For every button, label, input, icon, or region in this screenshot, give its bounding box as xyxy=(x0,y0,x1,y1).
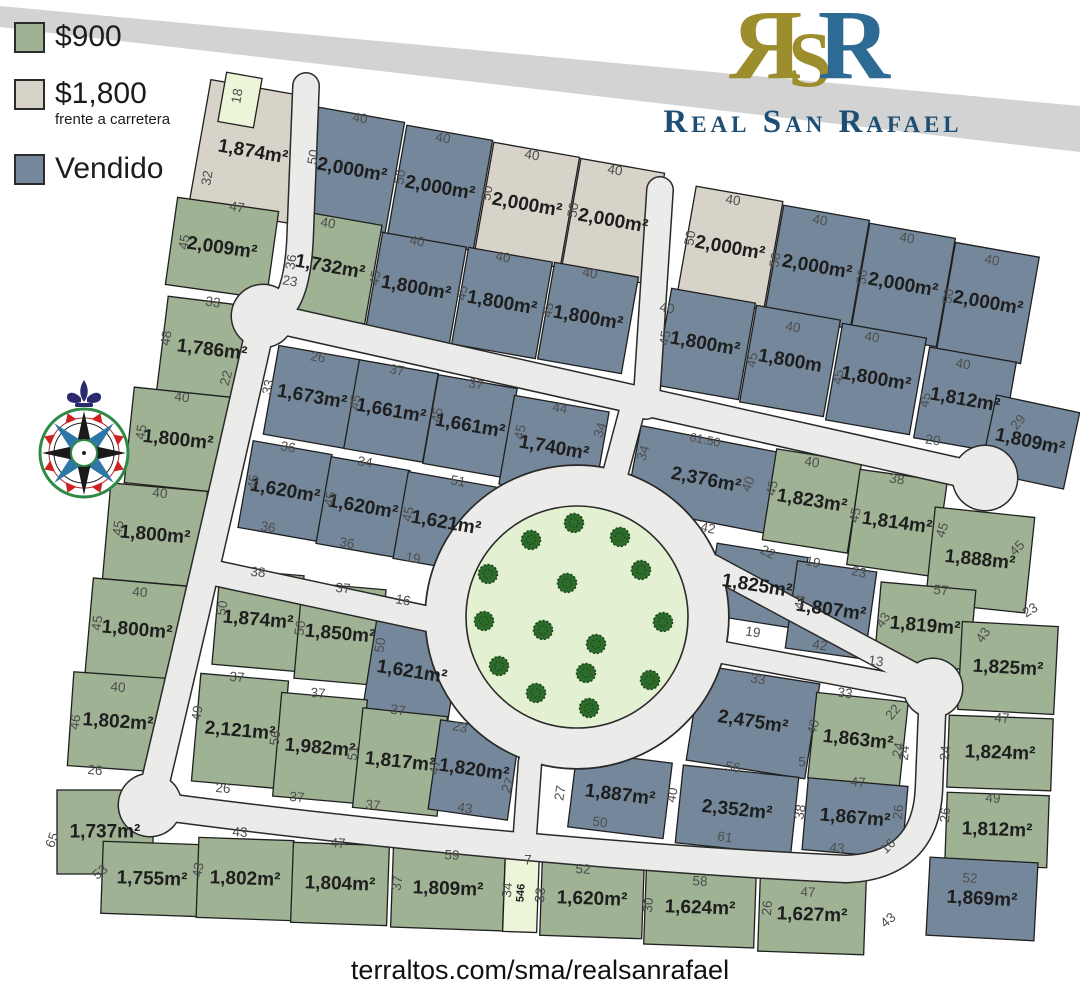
lot-frontage-label: 23 xyxy=(850,563,868,581)
lot-frontage-label: 43 xyxy=(829,840,845,856)
legend-sublabel: frente a carretera xyxy=(55,111,170,128)
tree-icon xyxy=(641,671,660,690)
lot-frontage-label: 40 xyxy=(983,251,1000,268)
lot-frontage-label: 40 xyxy=(174,389,191,406)
lot-frontage-label: 36 xyxy=(279,438,296,455)
lot-frontage-label: 40 xyxy=(319,214,336,231)
lot-frontage-label: 40 xyxy=(132,584,149,600)
lot-frontage-label: 43 xyxy=(877,909,898,930)
lot-frontage-label: 34 xyxy=(499,881,515,898)
central-park xyxy=(466,506,688,728)
lot-frontage-label: 7 xyxy=(524,853,532,868)
lot-frontage-label: 40 xyxy=(152,485,169,501)
lot-frontage-label: 40 xyxy=(811,211,828,228)
legend-item-front: $1,800 frente a carretera xyxy=(14,79,170,128)
lot-frontage-label: 43 xyxy=(456,799,473,816)
lot-frontage-label: 46 xyxy=(67,714,84,731)
lot-size-label: 1,620m² xyxy=(556,887,627,910)
lot-frontage-label: 16 xyxy=(394,591,411,608)
lot-frontage-label: 40 xyxy=(863,328,880,345)
lot-frontage-label: 47 xyxy=(800,884,816,900)
available-swatch-icon xyxy=(14,22,45,53)
tree-icon xyxy=(490,657,509,676)
lot-frontage-label: 40 xyxy=(581,264,598,281)
lot-frontage-label: 38 xyxy=(889,471,906,488)
lot-frontage-label: 52 xyxy=(962,870,978,886)
tree-icon xyxy=(558,574,577,593)
lot-frontage-label: 51 xyxy=(449,472,466,489)
lot-frontage-label: 33 xyxy=(532,887,548,903)
tree-icon xyxy=(580,699,599,718)
lot-frontage-label: 50 xyxy=(853,268,870,285)
lot-frontage-label: 42 xyxy=(812,637,829,654)
lot-frontage-label: 26 xyxy=(759,900,775,916)
lot-frontage-label: 45 xyxy=(244,473,262,491)
tree-icon xyxy=(654,613,673,632)
lot-frontage-label: 56 xyxy=(267,730,284,747)
lot-frontage-label: 47 xyxy=(994,710,1010,726)
tree-icon xyxy=(479,565,498,584)
lot-frontage-label: 26 xyxy=(890,804,906,820)
tree-icon xyxy=(522,531,541,550)
lot-frontage-label: 58 xyxy=(692,873,708,889)
lot-frontage-label: 19 xyxy=(804,553,822,571)
lot-frontage-label: 45 xyxy=(916,391,933,408)
lot-frontage-label: 42 xyxy=(699,519,717,537)
lot-frontage-label: 40 xyxy=(954,355,971,372)
lot-frontage-label: 24 xyxy=(889,741,906,759)
lot-frontage-label: 40 xyxy=(606,161,623,178)
lot-frontage-label: 40 xyxy=(658,299,675,316)
lot-frontage-label: 26 xyxy=(309,348,326,365)
lot-frontage-label: 18 xyxy=(228,87,245,104)
lot-frontage-label: 38 xyxy=(250,564,266,580)
lot-frontage-label: 45 xyxy=(511,423,529,441)
monogram-letter: R xyxy=(736,0,802,90)
legend-item-sold: Vendido xyxy=(14,154,170,185)
lot-frontage-label: 50 xyxy=(766,251,783,268)
brand-logo: RSR Real San Rafael xyxy=(648,0,978,141)
monogram-letter: R xyxy=(818,0,890,90)
lot-frontage-label: 36 xyxy=(259,518,276,535)
lot-frontage-label: 40 xyxy=(110,679,126,695)
legend: $900 $1,800 frente a carretera Vendido xyxy=(14,22,170,211)
front-road-swatch-icon xyxy=(14,79,45,110)
brand-title: Real San Rafael xyxy=(648,104,978,141)
lot-frontage-label: 45 xyxy=(539,301,556,318)
lot-frontage-label: 50 xyxy=(681,229,698,246)
legend-item-available: $900 xyxy=(14,22,170,53)
lot-frontage-label: 37 xyxy=(388,361,405,378)
tree-icon xyxy=(475,612,494,631)
lot-size-label: 1,812m² xyxy=(961,818,1032,841)
lot-frontage-label: 45 xyxy=(743,351,760,368)
lot-frontage-label: 51 xyxy=(345,745,362,762)
lot-frontage-label: 47 xyxy=(330,835,346,851)
tree-icon xyxy=(587,635,606,654)
lot-frontage-label: 49 xyxy=(189,705,206,722)
lot-frontage-label: 27 xyxy=(551,784,568,801)
lot-size-label: 1,802m² xyxy=(209,867,280,890)
lot-size-label: 1,809m² xyxy=(412,877,483,900)
lot-frontage-label: 40 xyxy=(523,146,540,163)
lot-size-label: 1,825m² xyxy=(972,656,1044,681)
compass-star xyxy=(42,411,126,495)
tree-icon xyxy=(611,528,630,547)
lot-frontage-label: 48 xyxy=(158,330,175,347)
lot-frontage-label: 40 xyxy=(724,191,741,208)
lot-frontage-label: 59 xyxy=(444,847,460,863)
lot-frontage-label: 56 xyxy=(725,759,742,776)
lot-frontage-label: 50 xyxy=(372,637,389,654)
lot-frontage-label: 37 xyxy=(467,375,484,392)
lot-frontage-label: 32 xyxy=(198,169,215,186)
tree-icon xyxy=(534,621,553,640)
lot-frontage-label: 37 xyxy=(365,797,381,813)
lot-frontage-label: 33 xyxy=(205,294,222,311)
lot-frontage-label: 44 xyxy=(551,399,569,416)
website-url: terraltos.com/sma/realsanrafael xyxy=(0,955,1080,986)
lot-size-label: 1,824m² xyxy=(964,741,1035,764)
sold-swatch-icon xyxy=(14,154,45,185)
lot-frontage-label: 24 xyxy=(937,744,953,761)
compass-rose-icon xyxy=(32,378,136,508)
lot-frontage-label: 50 xyxy=(304,148,321,165)
lot-frontage-label: 45 xyxy=(110,520,127,537)
lot-size-label: 1,755m² xyxy=(116,867,187,890)
lot-frontage-label: 36 xyxy=(338,534,355,551)
lot-frontage-label: 45 xyxy=(829,368,846,385)
lot-size-label: 1,627m² xyxy=(776,903,847,926)
lot-size-label: 1,804m² xyxy=(304,872,375,895)
lot-frontage-label: 50 xyxy=(564,201,581,218)
lot-frontage-label: 37 xyxy=(229,669,245,685)
lot-frontage-label: 47 xyxy=(426,758,444,776)
lot-frontage-label: 20 xyxy=(925,432,942,449)
tree-icon xyxy=(632,561,651,580)
lot-size-label: 546 xyxy=(514,883,527,902)
tree-icon xyxy=(577,664,596,683)
lot-frontage-label: 5 xyxy=(798,755,806,770)
lot-frontage-label: 50 xyxy=(939,287,956,304)
lot-frontage-label: 13 xyxy=(868,653,885,670)
lot-size-label: 1,737m² xyxy=(70,822,141,843)
lot-frontage-label: 52 xyxy=(575,861,591,877)
lot-frontage-label: 45 xyxy=(763,479,781,497)
lot-frontage-label: 45 xyxy=(175,233,192,250)
lot-frontage-label: 49 xyxy=(985,790,1001,806)
lot-frontage-label: 19 xyxy=(404,549,421,566)
lot-frontage-label: 40 xyxy=(434,129,451,146)
lot-frontage-label: 45 xyxy=(89,615,106,632)
lot-frontage-label: 26 xyxy=(937,807,953,823)
lot-frontage-label: 40 xyxy=(494,248,511,265)
lot-frontage-label: 47 xyxy=(850,774,866,790)
lot-frontage-label: 30 xyxy=(640,897,656,913)
lot-frontage-label: 34 xyxy=(356,453,374,470)
legend-label: Vendido xyxy=(55,154,163,184)
lot-frontage-label: 33 xyxy=(837,685,854,702)
lot-frontage-label: 37 xyxy=(390,702,407,719)
lot-frontage-label: 45 xyxy=(346,393,364,411)
lot-frontage-label: 45 xyxy=(399,505,417,523)
lot-frontage-label: 40 xyxy=(408,232,425,249)
lot-frontage-label: 47 xyxy=(228,198,245,215)
lot-frontage-label: 23 xyxy=(281,272,298,289)
lot-frontage-label: 45 xyxy=(656,329,673,346)
lot-frontage-label: 36 xyxy=(282,253,299,270)
lot-frontage-label: 26 xyxy=(215,780,231,796)
lot-frontage-label: 40 xyxy=(351,109,368,126)
lot-frontage-label: 45 xyxy=(453,284,470,301)
lot-frontage-label: 19 xyxy=(745,624,762,641)
lot-frontage-label: 45 xyxy=(321,490,339,508)
lot-frontage-label: 40 xyxy=(898,229,915,246)
lot-frontage-label: 43 xyxy=(232,824,248,840)
lot-frontage-label: 45 xyxy=(428,406,446,424)
lot-frontage-label: 50 xyxy=(214,600,231,617)
lot-frontage-label: 57 xyxy=(933,582,950,598)
lot-frontage-label: 43 xyxy=(189,861,206,878)
lot-frontage-label: 23 xyxy=(451,718,469,736)
lot-frontage-label: 37 xyxy=(335,580,351,596)
lot-frontage-label: 40 xyxy=(784,318,801,335)
street xyxy=(524,762,530,848)
tree-icon xyxy=(527,684,546,703)
lot-size-label: 1,869m² xyxy=(946,887,1018,912)
lot-frontage-label: 37 xyxy=(389,875,406,892)
lot-frontage-label: 38 xyxy=(791,803,808,820)
legend-label: $900 xyxy=(55,22,122,52)
lot-frontage-label: 45 xyxy=(366,269,383,286)
lot-frontage-label: 33 xyxy=(749,670,766,687)
lot-frontage-label: 61 xyxy=(717,829,734,846)
lot-frontage-label: 40 xyxy=(663,786,680,803)
lot-frontage-label: 37 xyxy=(310,685,326,701)
rsr-monogram-icon: RSR xyxy=(648,0,978,100)
lot-frontage-label: 50 xyxy=(592,814,609,831)
lot-frontage-label: 26 xyxy=(87,762,103,778)
lot-frontage-label: 40 xyxy=(803,453,820,470)
legend-label: $1,800 xyxy=(55,79,170,109)
tree-icon xyxy=(565,514,584,533)
lot-frontage-label: 33 xyxy=(259,378,277,396)
lot-frontage-label: 50 xyxy=(292,620,309,637)
lot-size-label: 1,624m² xyxy=(664,896,735,919)
lot-frontage-label: 45 xyxy=(846,506,864,524)
lot-frontage-label: 50 xyxy=(478,184,495,201)
lot-frontage-label: 37 xyxy=(289,789,305,805)
lot-frontage-label: 50 xyxy=(391,168,408,185)
